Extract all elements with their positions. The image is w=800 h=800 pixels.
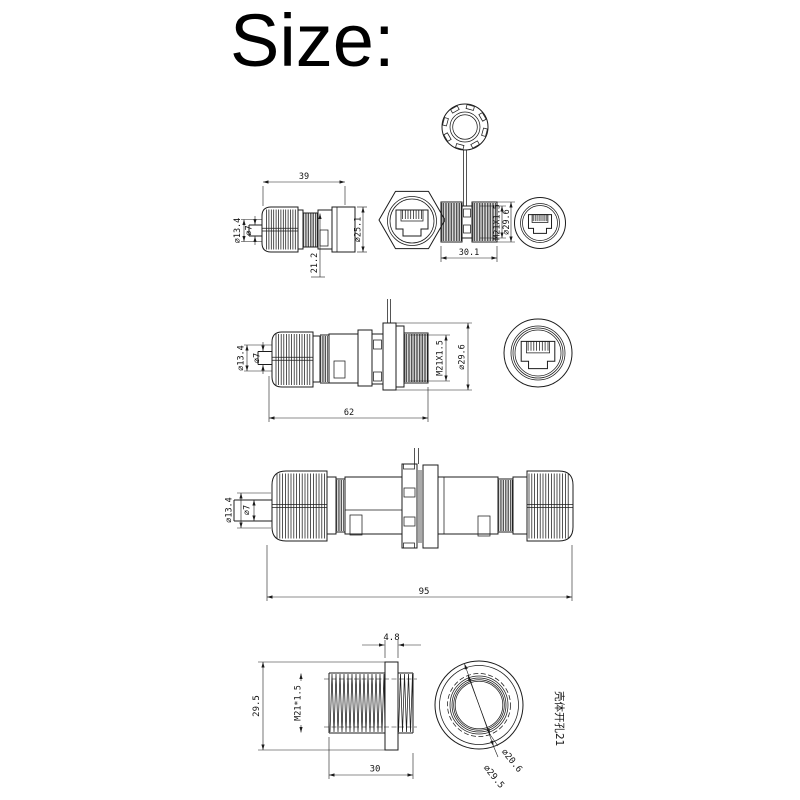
assembly-side-view: ⌀13.4 ⌀7 M21X1.5 ⌀29.6 62 bbox=[237, 299, 473, 422]
dim-cable-clamp-label: ⌀13.4 bbox=[233, 218, 243, 244]
rj45-jack-icon bbox=[528, 215, 551, 234]
texture-lines bbox=[533, 215, 547, 222]
texture-lines bbox=[330, 674, 385, 732]
texture-lines bbox=[442, 203, 461, 241]
socket-front-round-view bbox=[515, 198, 566, 249]
dim-length-label: 30.1 bbox=[459, 248, 479, 258]
texture-lines bbox=[499, 480, 513, 531]
dim-rear-label: 21.2 bbox=[310, 253, 320, 273]
cap-notch bbox=[444, 133, 451, 142]
texture-lines bbox=[532, 215, 548, 223]
thread-texture bbox=[321, 336, 328, 382]
assembly-front-view bbox=[504, 319, 572, 387]
texture-lines bbox=[401, 210, 423, 221]
gland-nut-ribs bbox=[277, 474, 325, 539]
texture-lines bbox=[405, 334, 427, 382]
dim-cable-label: ⌀7 bbox=[253, 353, 263, 363]
texture-lines bbox=[528, 341, 548, 350]
socket-side-view: M21X1.5 ⌀29.6 30.1 bbox=[441, 202, 515, 262]
dim-flange-width-label: 4.8 bbox=[383, 633, 399, 643]
texture-lines bbox=[276, 334, 310, 385]
cap-notch bbox=[471, 141, 480, 148]
rj45-jack-icon bbox=[521, 341, 555, 368]
texture-lines bbox=[403, 210, 422, 219]
dim-body-label: ⌀25.1 bbox=[354, 217, 364, 243]
gland-nut-ribs bbox=[529, 474, 568, 539]
thread-texture bbox=[304, 214, 318, 247]
thread-texture bbox=[405, 334, 427, 382]
dim-length-label: 30 bbox=[370, 765, 381, 775]
dim-cable-clamp-label: ⌀13.4 bbox=[237, 345, 247, 371]
thread-texture bbox=[337, 480, 344, 531]
cap-notch bbox=[479, 113, 486, 122]
gland-nut-ribs bbox=[267, 210, 296, 250]
cutout-note-label: 壳体开孔21 bbox=[553, 691, 566, 746]
thread-zigzag bbox=[330, 674, 385, 732]
dim-outer-label: ⌀29.5 bbox=[481, 764, 506, 791]
dim-cable-label: ⌀7 bbox=[243, 505, 253, 515]
rj45-jack-icon bbox=[396, 210, 428, 236]
dim-hole-label: ⌀20.6 bbox=[499, 748, 524, 775]
texture-lines bbox=[526, 341, 549, 353]
dim-flange-label: ⌀29.6 bbox=[458, 344, 468, 370]
dim-cable-label: ⌀7 bbox=[245, 225, 255, 235]
dim-thread-label: M21X1.5 bbox=[436, 340, 446, 376]
texture-lines bbox=[399, 674, 414, 732]
dim-thread-label: M21*1.5 bbox=[294, 685, 304, 721]
dim-flange-label: ⌀29.6 bbox=[502, 209, 512, 235]
dim-thread-label: M21X1.5 bbox=[493, 204, 503, 240]
texture-lines bbox=[277, 474, 325, 539]
dim-length-label: 95 bbox=[419, 587, 430, 597]
gland-nut-ribs bbox=[276, 334, 310, 385]
panel-cutout-view: ⌀20.6 ⌀29.5 壳体开孔21 bbox=[435, 661, 566, 791]
texture-lines bbox=[321, 336, 328, 382]
texture-lines bbox=[267, 210, 296, 250]
dim-length-label: 39 bbox=[299, 172, 309, 182]
cap-notch bbox=[451, 106, 460, 113]
texture-lines bbox=[529, 474, 568, 539]
coupler-side-view: ⌀13.4 ⌀7 95 bbox=[225, 448, 574, 601]
gland-thread-view: 4.8 29.5 M21*1.5 30 bbox=[252, 633, 421, 779]
cap-notches bbox=[443, 105, 488, 150]
dim-cable-clamp-label: ⌀13.4 bbox=[225, 497, 235, 523]
technical-drawing: 39 ⌀13.4 ⌀7 ⌀25.1 21.2 bbox=[0, 0, 800, 800]
dim-flange-od-label: 29.5 bbox=[252, 695, 262, 717]
texture-lines bbox=[304, 214, 318, 247]
dust-cap-top-view bbox=[442, 104, 488, 206]
socket-front-hex-view bbox=[379, 191, 445, 248]
dim-length-label: 62 bbox=[344, 408, 354, 418]
plug-side-view: 39 ⌀13.4 ⌀7 ⌀25.1 21.2 bbox=[233, 172, 367, 277]
thread-texture bbox=[442, 203, 461, 241]
texture-lines bbox=[337, 480, 344, 531]
thread-zigzag bbox=[399, 674, 414, 732]
thread-texture bbox=[499, 480, 513, 531]
